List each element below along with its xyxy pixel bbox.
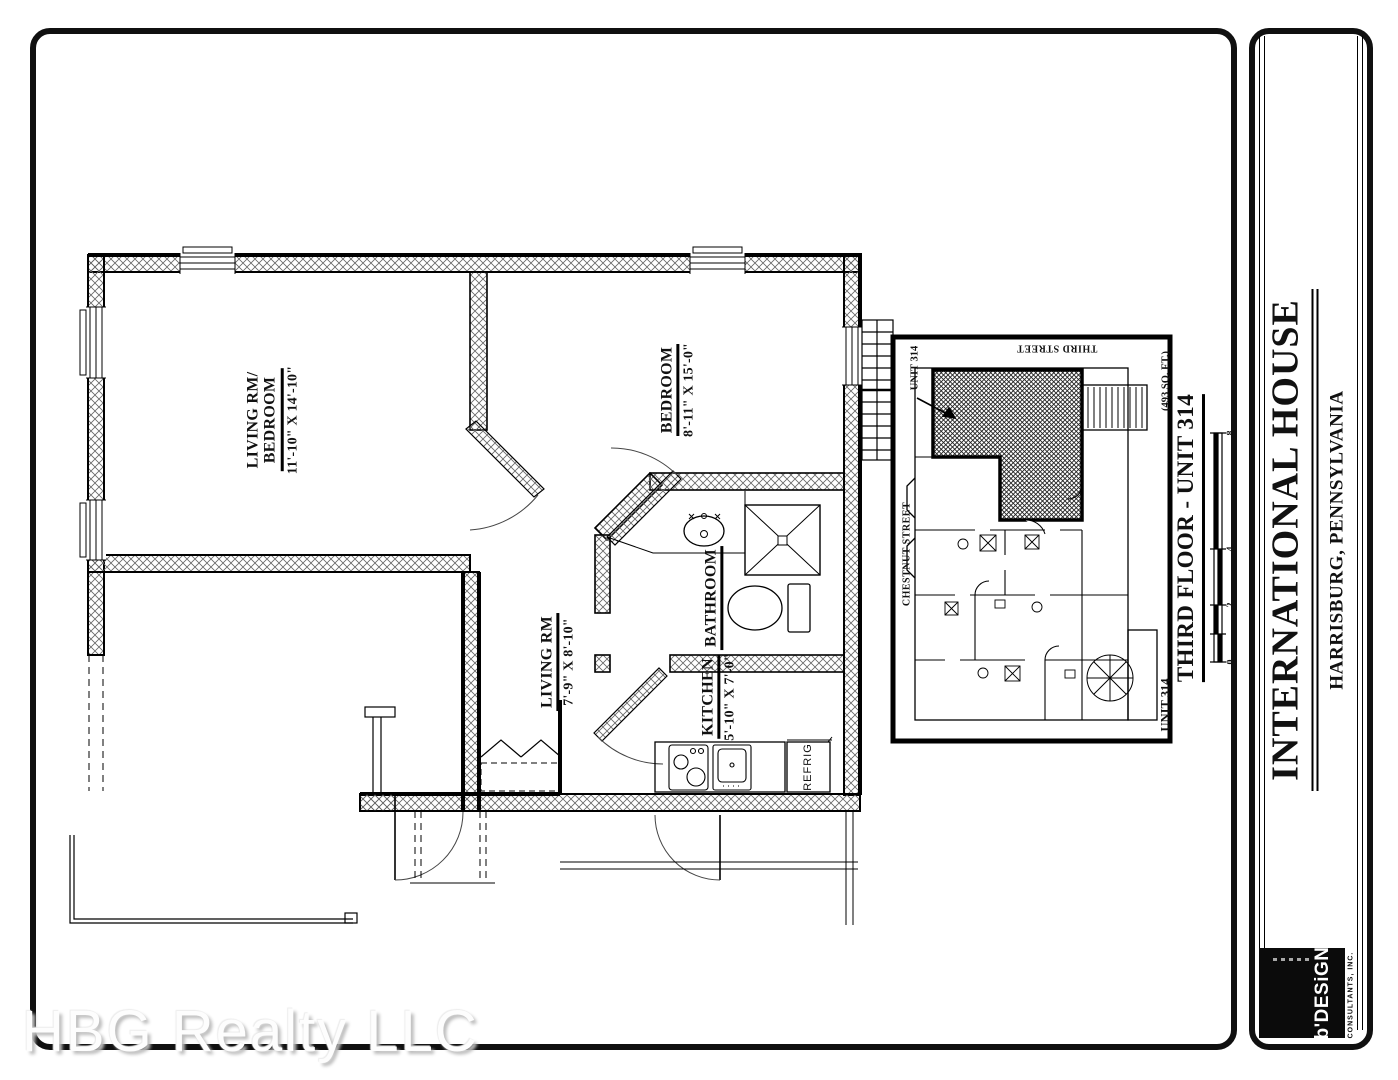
room-name: BATHROOM [702, 549, 719, 647]
main-floor-plan-drawing [55, 235, 905, 935]
room-dimension: 8'-11" X 15'-0" [682, 343, 698, 437]
street-label-third: THIRD STREET [1017, 343, 1098, 354]
closet [481, 740, 561, 791]
window-left-upper [80, 307, 106, 378]
door-leaf-bathroom [594, 668, 667, 741]
porch-column [365, 707, 395, 793]
room-label-bathroom: BATHROOM [702, 546, 723, 650]
scale-mark-2: 2 [1226, 603, 1237, 608]
room-dimension: 11'-10" X 14'-10" [285, 366, 301, 474]
room-label-living-bedroom: LIVING RM/ BEDROOM 11'-10" X 14'-10" [245, 366, 302, 474]
doors [466, 421, 681, 764]
room-name: LIVING RM [538, 616, 555, 708]
stair-dashed-lines [89, 655, 486, 883]
door-arc-bathroom [598, 737, 663, 764]
entry-door-arc [395, 812, 463, 880]
key-spiral-stair [1087, 655, 1133, 701]
project-location: HARRISBURG, PENNSYLVANIA [1327, 230, 1349, 850]
drawing-title: THIRD FLOOR - UNIT 314 [1173, 394, 1205, 682]
logo-fine-print [1273, 958, 1313, 961]
room-dimension: 5'-10" X 7'-0" [723, 653, 739, 741]
key-plan-area-label: (493 SQ. FT.) [1161, 351, 1172, 411]
window-right-bedroom [842, 327, 862, 385]
shower [745, 505, 820, 575]
door-arc-bedroom [611, 448, 677, 475]
scale-mark-8: 8 [1226, 431, 1237, 436]
scale-mark-0: 0 [1226, 660, 1237, 665]
room-name: BEDROOM [658, 347, 675, 434]
window-top-left [180, 247, 235, 274]
logo-subtitle: CONSULTANTS, INC. [1348, 952, 1355, 1039]
stove [669, 745, 708, 790]
realty-watermark: HBG Realty LLC [22, 998, 479, 1065]
window-top-bedroom [690, 247, 745, 274]
key-plan-unit-label: UNIT 314 [1159, 679, 1174, 732]
logo-brand-name: b'DESiGN [1312, 947, 1334, 1040]
room-label-kitchen: KITCHEN 5'-10" X 7'-0" [699, 653, 738, 741]
room-name: KITCHEN [699, 658, 716, 736]
project-name: INTERNATIONAL HOUSE [1264, 289, 1319, 791]
corridor-lines [560, 811, 858, 925]
project-title-block: INTERNATIONAL HOUSE HARRISBURG, PENNSYLV… [1264, 230, 1349, 850]
room-name-line1: LIVING RM/ [245, 372, 262, 469]
window-left-lower [80, 500, 106, 560]
floor-plan-sheet: 8 4 2 0 LIVING RM/ BEDROOM 11'-10" X 14'… [0, 0, 1398, 1080]
scale-mark-4: 4 [1226, 547, 1237, 552]
kitchen-sink [713, 745, 751, 790]
room-label-bedroom: BEDROOM 8'-11" X 15'-0" [658, 343, 697, 437]
door-leaf-living-bedroom [466, 421, 544, 497]
design-firm-logo: b'DESiGN [1259, 948, 1345, 1038]
walkway [70, 835, 357, 923]
room-dimension: 7'-9" X 8'-10" [562, 618, 578, 706]
refrigerator-label: REFRIG [802, 743, 814, 791]
key-unit-callout-label: UNIT 314 [910, 346, 921, 390]
street-label-chestnut: CHESTNUT STREET [902, 502, 913, 606]
panel-rule-right [1357, 36, 1363, 1030]
door-arc-living-bedroom [470, 495, 538, 530]
hall-door-arc [655, 815, 720, 880]
toilet [728, 584, 810, 632]
room-name-line2: BEDROOM [262, 377, 279, 464]
room-label-living: LIVING RM 7'-9" X 8'-10" [538, 613, 577, 711]
key-plan-drawing [885, 330, 1185, 745]
